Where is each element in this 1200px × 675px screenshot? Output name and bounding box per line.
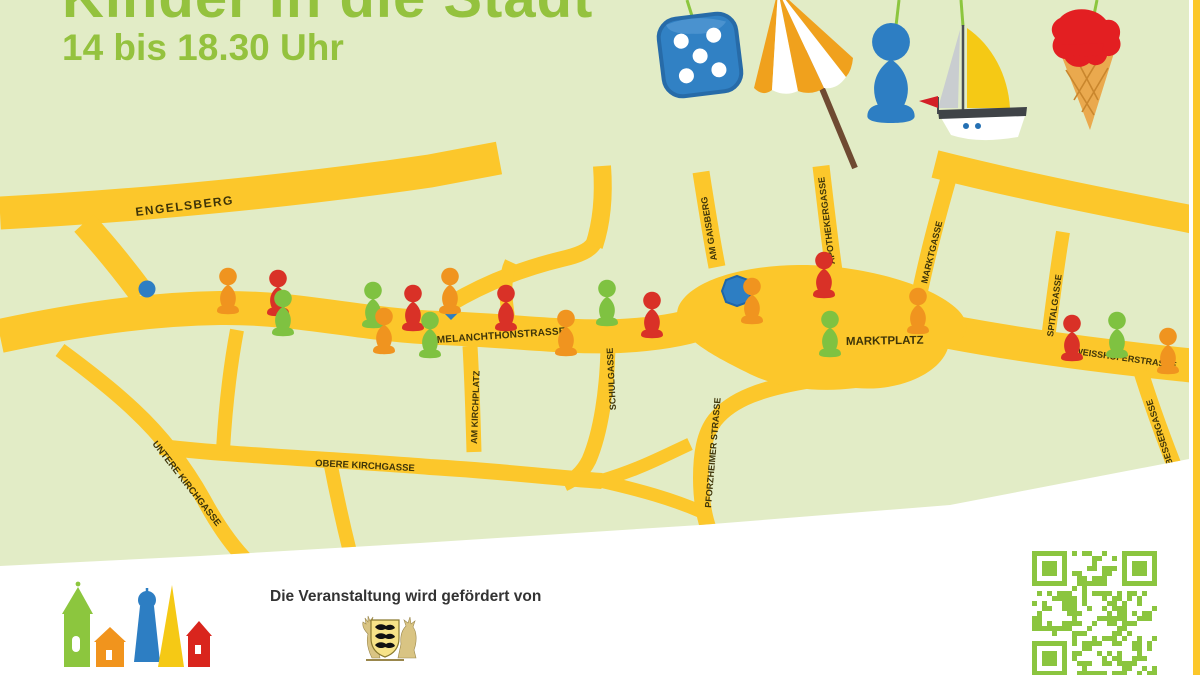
road-upper-vertical — [594, 166, 603, 246]
qr-module — [1152, 606, 1157, 611]
qr-module — [1077, 571, 1082, 576]
qr-module — [1122, 666, 1127, 671]
qr-module — [1092, 591, 1097, 596]
qr-module — [1107, 661, 1112, 666]
qr-module — [1067, 606, 1072, 611]
qr-module — [1132, 656, 1137, 661]
qr-module — [1147, 671, 1152, 675]
qr-module — [1112, 596, 1117, 601]
qr-module — [1082, 551, 1087, 556]
qr-module — [1097, 651, 1102, 656]
qr-module — [1047, 621, 1052, 626]
qr-module — [1072, 606, 1077, 611]
qr-module — [1117, 671, 1122, 675]
poster-subtitle: 14 bis 18.30 Uhr — [62, 27, 344, 69]
qr-module — [1117, 626, 1122, 631]
qr-module — [1132, 611, 1137, 616]
qr-module — [1032, 626, 1037, 631]
qr-module — [1147, 616, 1152, 621]
qr-module — [1152, 636, 1157, 641]
qr-module — [1072, 621, 1077, 626]
qr-module — [1112, 601, 1117, 606]
qr-module — [1137, 656, 1142, 661]
qr-module — [1107, 611, 1112, 616]
qr-module — [1042, 561, 1057, 576]
qr-module — [1067, 626, 1072, 631]
qr-module — [1132, 591, 1137, 596]
qr-module — [1117, 631, 1122, 636]
sponsor-text: Die Veranstaltung wird gefördert von — [270, 588, 541, 606]
qr-module — [1102, 566, 1107, 571]
qr-module — [1072, 651, 1077, 656]
qr-module — [1152, 666, 1157, 671]
qr-module — [1097, 616, 1102, 621]
qr-module — [1117, 606, 1122, 611]
qr-module — [1092, 566, 1097, 571]
qr-module — [1122, 661, 1127, 666]
qr-module — [1107, 651, 1112, 656]
qr-module — [1122, 621, 1127, 626]
qr-module — [1112, 636, 1117, 641]
qr-module — [1077, 661, 1082, 666]
qr-module — [1142, 591, 1147, 596]
qr-module — [1087, 661, 1092, 666]
qr-module — [1082, 646, 1087, 651]
qr-module — [1047, 626, 1052, 631]
qr-module — [1102, 616, 1107, 621]
qr-module — [1087, 641, 1092, 646]
qr-module — [1112, 656, 1117, 661]
qr-module — [1072, 636, 1077, 641]
qr-module — [1142, 656, 1147, 661]
qr-module — [1067, 596, 1072, 601]
qr-module — [1072, 611, 1077, 616]
qr-module — [1072, 596, 1077, 601]
event-poster: ENGELSBERG MELANCHTHONSTRASSE AM KIRCHPL… — [0, 0, 1200, 675]
qr-module — [1102, 656, 1107, 661]
qr-module — [1062, 596, 1067, 601]
border-stripe — [1193, 0, 1200, 675]
qr-module — [1117, 661, 1122, 666]
qr-module — [1032, 621, 1037, 626]
qr-module — [1112, 616, 1117, 621]
qr-module — [1087, 626, 1092, 631]
qr-module — [1077, 611, 1082, 616]
qr-module — [1062, 626, 1067, 631]
qr-module — [1117, 656, 1122, 661]
qr-module — [1047, 606, 1052, 611]
qr-module — [1082, 601, 1087, 606]
qr-module — [1037, 616, 1042, 621]
qr-module — [1112, 621, 1117, 626]
qr-module — [1137, 601, 1142, 606]
qr-module — [1082, 596, 1087, 601]
qr-module — [1077, 621, 1082, 626]
qr-module — [1117, 616, 1122, 621]
qr-module — [1137, 616, 1142, 621]
qr-module — [1137, 646, 1142, 651]
qr-module — [1107, 591, 1112, 596]
qr-module — [1087, 671, 1092, 675]
qr-module — [1042, 601, 1047, 606]
qr-module — [1102, 671, 1107, 675]
qr-module — [1077, 581, 1082, 586]
qr-module — [1077, 631, 1082, 636]
qr-module — [1102, 576, 1107, 581]
qr-module — [1142, 611, 1147, 616]
qr-module — [1112, 631, 1117, 636]
qr-module — [1042, 626, 1047, 631]
qr-module — [1072, 641, 1077, 646]
qr-module — [1112, 556, 1117, 561]
qr-module — [1062, 601, 1067, 606]
qr-module — [1092, 576, 1097, 581]
qr-module — [1082, 661, 1087, 666]
qr-module — [1092, 671, 1097, 675]
qr-module — [1107, 636, 1112, 641]
qr-module — [1077, 576, 1082, 581]
qr-module — [1037, 611, 1042, 616]
qr-module — [1142, 666, 1147, 671]
qr-module — [1072, 631, 1077, 636]
qr-module — [1092, 561, 1097, 566]
qr-module — [1072, 601, 1077, 606]
qr-module — [1037, 591, 1042, 596]
qr-module — [1087, 551, 1092, 556]
qr-module — [1102, 571, 1107, 576]
qr-module — [1102, 596, 1107, 601]
qr-module — [1087, 566, 1092, 571]
qr-module — [1052, 626, 1057, 631]
qr-module — [1032, 601, 1037, 606]
qr-module — [1127, 661, 1132, 666]
qr-module — [1132, 621, 1137, 626]
qr-module — [1142, 616, 1147, 621]
qr-module — [1102, 606, 1107, 611]
qr-module — [1057, 626, 1062, 631]
qr-module — [1112, 566, 1117, 571]
qr-module — [1087, 606, 1092, 611]
qr-module — [1117, 641, 1122, 646]
qr-module — [1067, 591, 1072, 596]
qr-module — [1092, 556, 1097, 561]
station-marker-circle — [139, 281, 156, 298]
qr-module — [1137, 636, 1142, 641]
qr-module — [1127, 596, 1132, 601]
qr-module — [1112, 606, 1117, 611]
qr-module — [1122, 616, 1127, 621]
qr-module — [1147, 646, 1152, 651]
city-map: ENGELSBERG MELANCHTHONSTRASSE AM KIRCHPL… — [0, 0, 1200, 675]
qr-module — [1082, 576, 1087, 581]
qr-module — [1062, 591, 1067, 596]
qr-module — [1127, 591, 1132, 596]
qr-module — [1097, 556, 1102, 561]
qr-module — [1122, 601, 1127, 606]
qr-module — [1067, 621, 1072, 626]
qr-module — [1082, 641, 1087, 646]
qr-module — [1122, 671, 1127, 675]
qr-module — [1112, 671, 1117, 675]
qr-module — [1082, 666, 1087, 671]
qr-module — [1082, 581, 1087, 586]
qr-module — [1052, 631, 1057, 636]
qr-module — [1117, 591, 1122, 596]
qr-module — [1072, 551, 1077, 556]
qr-module — [1077, 671, 1082, 675]
qr-module — [1082, 671, 1087, 675]
qr-module — [1127, 631, 1132, 636]
qr-module — [1152, 671, 1157, 675]
qr-module — [1047, 591, 1052, 596]
qr-module — [1097, 591, 1102, 596]
qr-module — [1037, 621, 1042, 626]
qr-module — [1112, 641, 1117, 646]
qr-module — [1102, 661, 1107, 666]
qr-module — [1072, 571, 1077, 576]
qr-module — [1132, 661, 1137, 666]
qr-module — [1072, 586, 1077, 591]
qr-module — [1147, 641, 1152, 646]
qr-module — [1082, 586, 1087, 591]
qr-module — [1087, 581, 1092, 586]
qr-module — [1052, 596, 1057, 601]
qr-module — [1132, 646, 1137, 651]
qr-module — [1072, 616, 1077, 621]
qr-module — [1097, 576, 1102, 581]
qr-module — [1122, 611, 1127, 616]
qr-module — [1137, 671, 1142, 675]
qr-module — [1127, 666, 1132, 671]
baden-wuerttemberg-crest-icon — [363, 616, 416, 660]
qr-module — [1097, 671, 1102, 675]
qr-module — [1107, 571, 1112, 576]
qr-module — [1087, 646, 1092, 651]
qr-module — [1097, 641, 1102, 646]
qr-module — [1092, 641, 1097, 646]
qr-module — [1037, 626, 1042, 631]
qr-module — [1057, 591, 1062, 596]
qr-module — [1082, 591, 1087, 596]
qr-module — [1092, 621, 1097, 626]
street-label-marktplatz: MARKTPLATZ — [846, 335, 924, 348]
qr-module — [1067, 601, 1072, 606]
qr-module — [1042, 606, 1047, 611]
qr-module — [1062, 606, 1067, 611]
qr-module — [1117, 651, 1122, 656]
qr-module — [1127, 621, 1132, 626]
qr-module — [1102, 636, 1107, 641]
qr-module — [1077, 651, 1082, 656]
qr-module — [1062, 621, 1067, 626]
qr-module — [1042, 651, 1057, 666]
qr-module — [1102, 551, 1107, 556]
qr-module — [1117, 611, 1122, 616]
qr-module — [1067, 611, 1072, 616]
qr-module — [1132, 561, 1147, 576]
qr-module — [1102, 591, 1107, 596]
die-icon — [657, 12, 744, 99]
qr-module — [1137, 641, 1142, 646]
qr-module — [1132, 641, 1137, 646]
qr-module — [1092, 581, 1097, 586]
qr-module — [1137, 596, 1142, 601]
qr-module — [1072, 656, 1077, 661]
qr-module — [1147, 611, 1152, 616]
qr-module — [1122, 636, 1127, 641]
qr-module — [1092, 636, 1097, 641]
qr-module — [1102, 581, 1107, 586]
qr-module — [1057, 596, 1062, 601]
qr-module — [1082, 631, 1087, 636]
qr-module — [1117, 596, 1122, 601]
qr-module — [1032, 616, 1037, 621]
qr-module — [1107, 566, 1112, 571]
qr-module — [1122, 626, 1127, 631]
qr-module — [1122, 606, 1127, 611]
qr-module — [1107, 621, 1112, 626]
qr-module — [1107, 616, 1112, 621]
qr-module — [1137, 651, 1142, 656]
qr-module — [1097, 581, 1102, 586]
qr-module — [1107, 601, 1112, 606]
